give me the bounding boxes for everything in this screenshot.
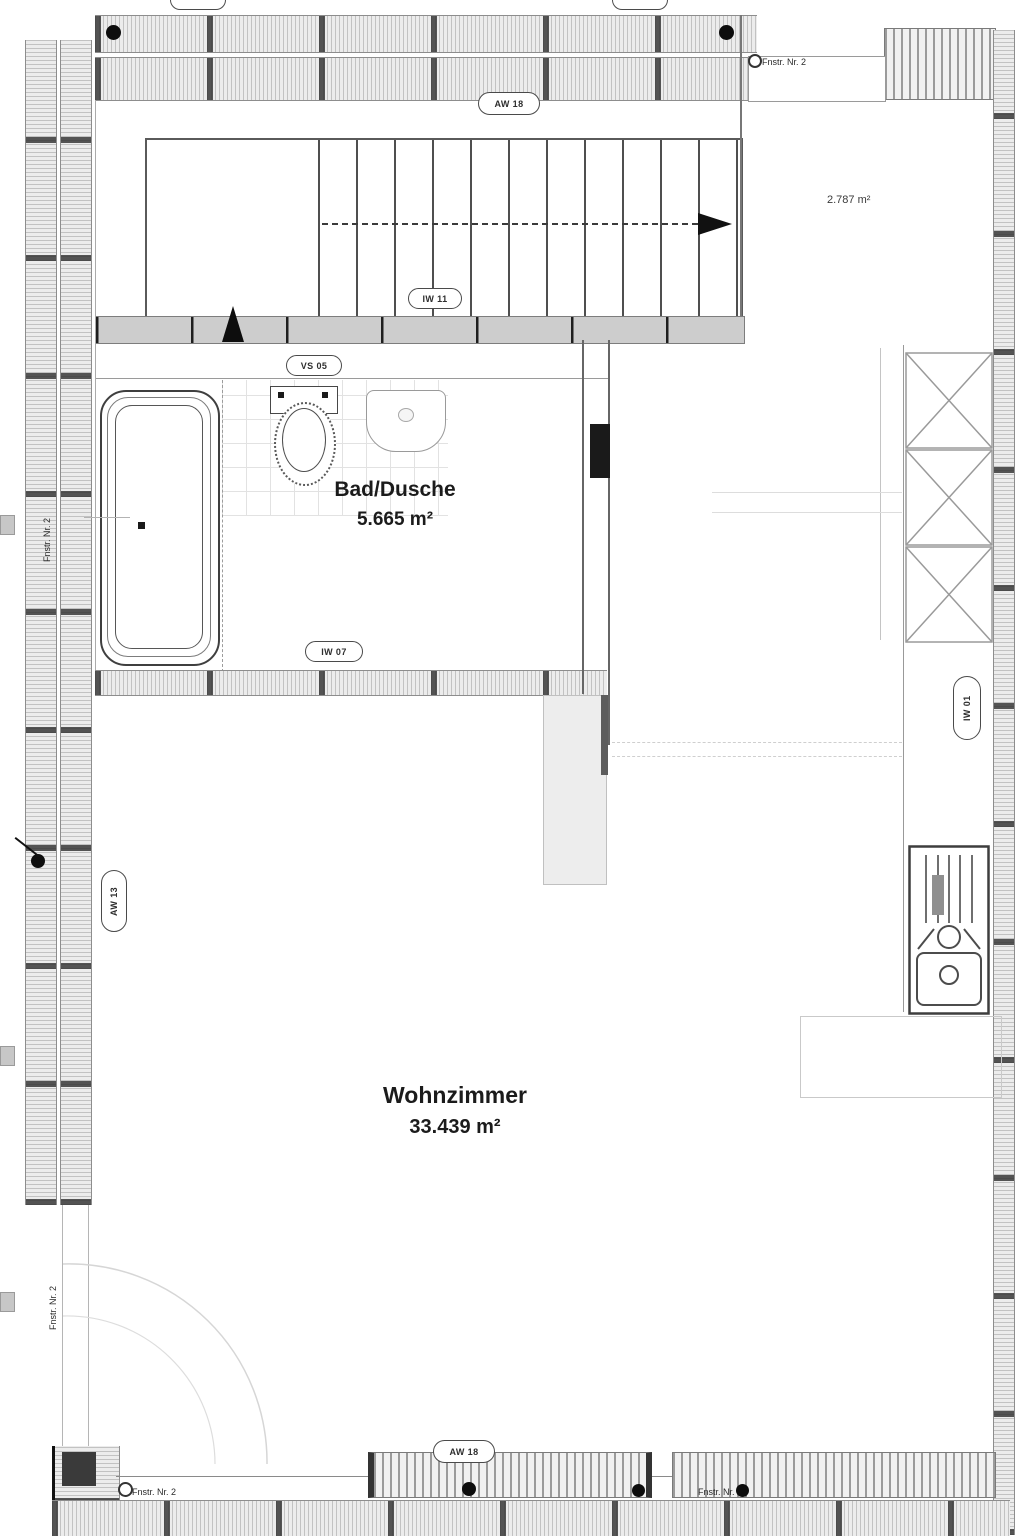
floor-plan-canvas: Bad/Dusche 5.665 m² Wohnzi [0,0,1024,1536]
bath-door-block [590,424,610,478]
bottom-center-window [368,1452,652,1498]
cabinet-left-line [880,348,881,640]
counter-dash-1 [612,742,902,743]
wall-tag-top: AW 18 [478,92,540,115]
bottom-left-corner-core [62,1452,96,1486]
wall-tag-stairs: IW 11 [408,288,462,309]
bathtub-drain-dot [138,522,145,529]
bottom-wall-outer [52,1500,1010,1536]
window-label-left-upper: Fnstr. Nr. 2 [42,518,52,562]
top-wall-inner [95,57,750,101]
counter-dash-2 [612,756,902,757]
toilet-bowl-inner [282,408,326,472]
counter-rect [800,1016,1002,1098]
bath-room-label: Bad/Dusche 5.665 m² [295,478,495,531]
bath-partition-dashed [222,380,223,672]
top-junction-dot-left [106,25,121,40]
top-right-window-band [884,28,996,100]
stair-treads [318,140,738,318]
counter-faint-1 [712,492,902,493]
left-wall-inner [60,40,92,1205]
toilet-tank-dot-right [322,392,328,398]
wall-tag-bath-bottom: IW 07 [305,641,363,662]
bath-right-wall-outer [608,340,610,745]
stair-direction-arrow-icon [698,213,732,235]
edge-mark-2 [0,1046,15,1066]
living-room-label: Wohnzimmer 33.439 m² [335,1082,575,1139]
right-wall [993,30,1015,1535]
bath-leader-line [84,517,130,518]
bath-room-name: Bad/Dusche [295,478,495,502]
bath-left-face-line [95,100,96,672]
bottom-dot-1 [462,1482,476,1496]
toilet-tank-dot-left [278,392,284,398]
top-right-hinge-circle [748,54,762,68]
left-wall-outer [25,40,57,1205]
top-edge-tag-right [612,0,668,10]
edge-mark-3 [0,1292,15,1312]
window-label-left-lower: Fnstr. Nr. 2 [48,1286,58,1330]
bath-right-wall-inner [582,340,584,694]
wall-tag-left: AW 13 [101,870,127,932]
top-junction-dot-right [719,25,734,40]
washbasin-drain [398,408,414,422]
counter-faint-2 [712,512,902,513]
top-wall-outer [95,15,757,53]
bottom-left-hinge-circle [118,1482,133,1497]
living-room-name: Wohnzimmer [335,1082,575,1109]
kitchen-sink [908,845,990,1015]
wall-tag-bath-top: VS 05 [286,355,342,376]
edge-mark-1 [0,515,15,535]
living-room-area: 33.439 m² [335,1116,575,1139]
cabinet-x-boxes [905,352,993,644]
wall-tag-right: IW 01 [953,676,981,740]
stair-walkline [322,223,698,225]
duct-pier [543,695,607,885]
bath-bottom-wall [95,670,607,696]
stair-up-arrow-icon [222,306,244,342]
wall-tag-bottom: AW 18 [433,1440,495,1463]
door-swing-arcs [55,1258,280,1470]
bottom-dot-2 [632,1484,645,1497]
window-label-bottom-left: Fnstr. Nr. 2 [132,1487,176,1497]
duct-pier-edge [601,695,608,775]
bath-room-area: 5.665 m² [295,509,495,531]
top-edge-tag-left [170,0,226,10]
stair-right-wall-line [740,15,742,340]
landing-wall-band [95,316,745,344]
bathtub-inner [115,405,203,649]
stair-area-label: 2.787 m² [827,194,870,206]
bath-top-face-line [95,378,608,379]
kitchen-wall-line [903,345,904,1012]
window-label-top-right: Fnstr. Nr. 2 [762,57,806,67]
bottom-dot-3 [736,1484,749,1497]
